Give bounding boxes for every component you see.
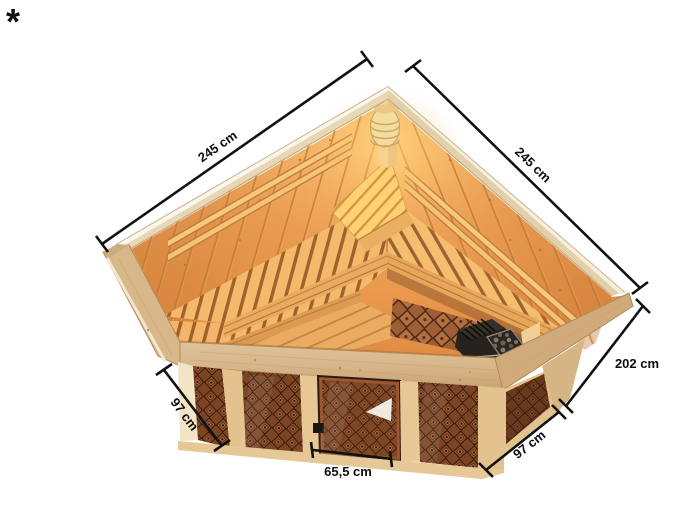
svg-text:65,5 cm: 65,5 cm [324, 464, 372, 479]
svg-text:202 cm: 202 cm [615, 356, 659, 371]
svg-text:*: * [6, 1, 20, 42]
